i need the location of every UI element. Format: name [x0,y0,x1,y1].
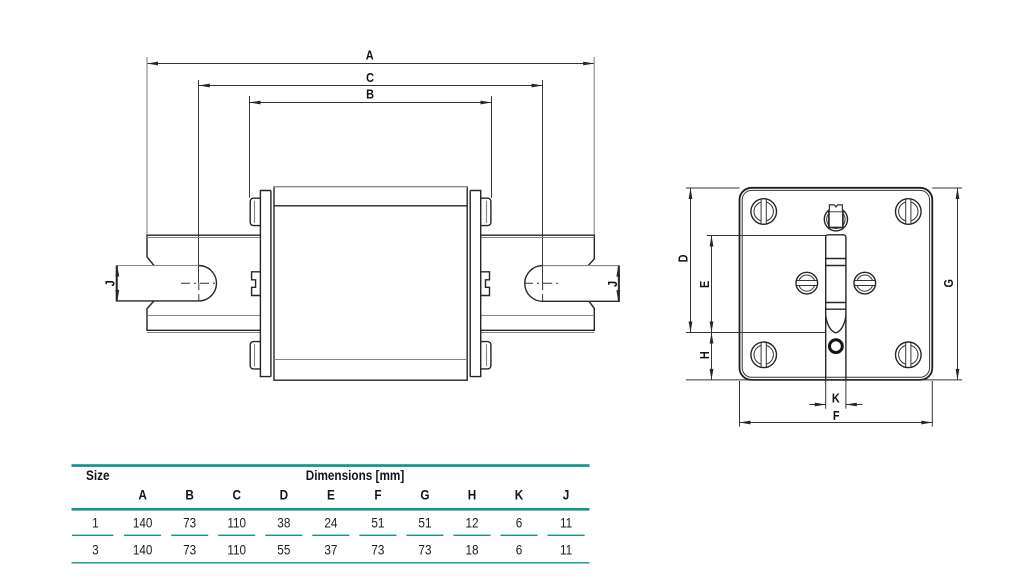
svg-text:73: 73 [371,542,384,558]
svg-text:18: 18 [465,542,478,558]
svg-text:J: J [563,487,570,503]
svg-text:73: 73 [418,542,431,558]
svg-text:D: D [280,487,288,503]
svg-text:11: 11 [560,542,572,558]
svg-text:110: 110 [227,542,246,558]
svg-text:11: 11 [560,515,572,531]
svg-text:37: 37 [324,542,337,558]
svg-text:51: 51 [371,515,384,531]
svg-text:38: 38 [277,515,290,531]
svg-text:F: F [374,487,381,503]
svg-text:H: H [697,351,712,359]
svg-text:G: G [941,279,956,287]
svg-text:3: 3 [92,542,99,558]
svg-text:B: B [185,487,193,503]
svg-text:B: B [366,86,374,101]
svg-text:Size: Size [86,467,109,483]
svg-text:6: 6 [516,515,523,531]
svg-text:73: 73 [183,515,196,531]
svg-text:G: G [420,487,429,503]
svg-text:J: J [605,281,620,287]
svg-text:D: D [676,254,691,262]
svg-text:J: J [103,280,118,286]
svg-text:1: 1 [92,515,99,531]
svg-text:73: 73 [183,542,196,558]
svg-text:K: K [515,487,524,503]
svg-text:A: A [138,487,146,503]
svg-text:51: 51 [418,515,431,531]
svg-text:C: C [232,487,240,503]
svg-text:E: E [697,281,712,288]
svg-text:C: C [366,70,374,85]
svg-text:H: H [468,487,476,503]
svg-text:A: A [366,48,374,63]
svg-text:K: K [832,390,840,405]
svg-text:Dimensions [mm]: Dimensions [mm] [306,467,405,483]
svg-text:E: E [327,487,335,503]
svg-text:110: 110 [227,515,246,531]
svg-text:6: 6 [516,542,523,558]
svg-text:140: 140 [133,515,153,531]
svg-text:F: F [833,408,840,423]
svg-text:55: 55 [277,542,290,558]
svg-text:24: 24 [324,515,337,531]
svg-text:12: 12 [465,515,478,531]
svg-text:140: 140 [133,542,153,558]
